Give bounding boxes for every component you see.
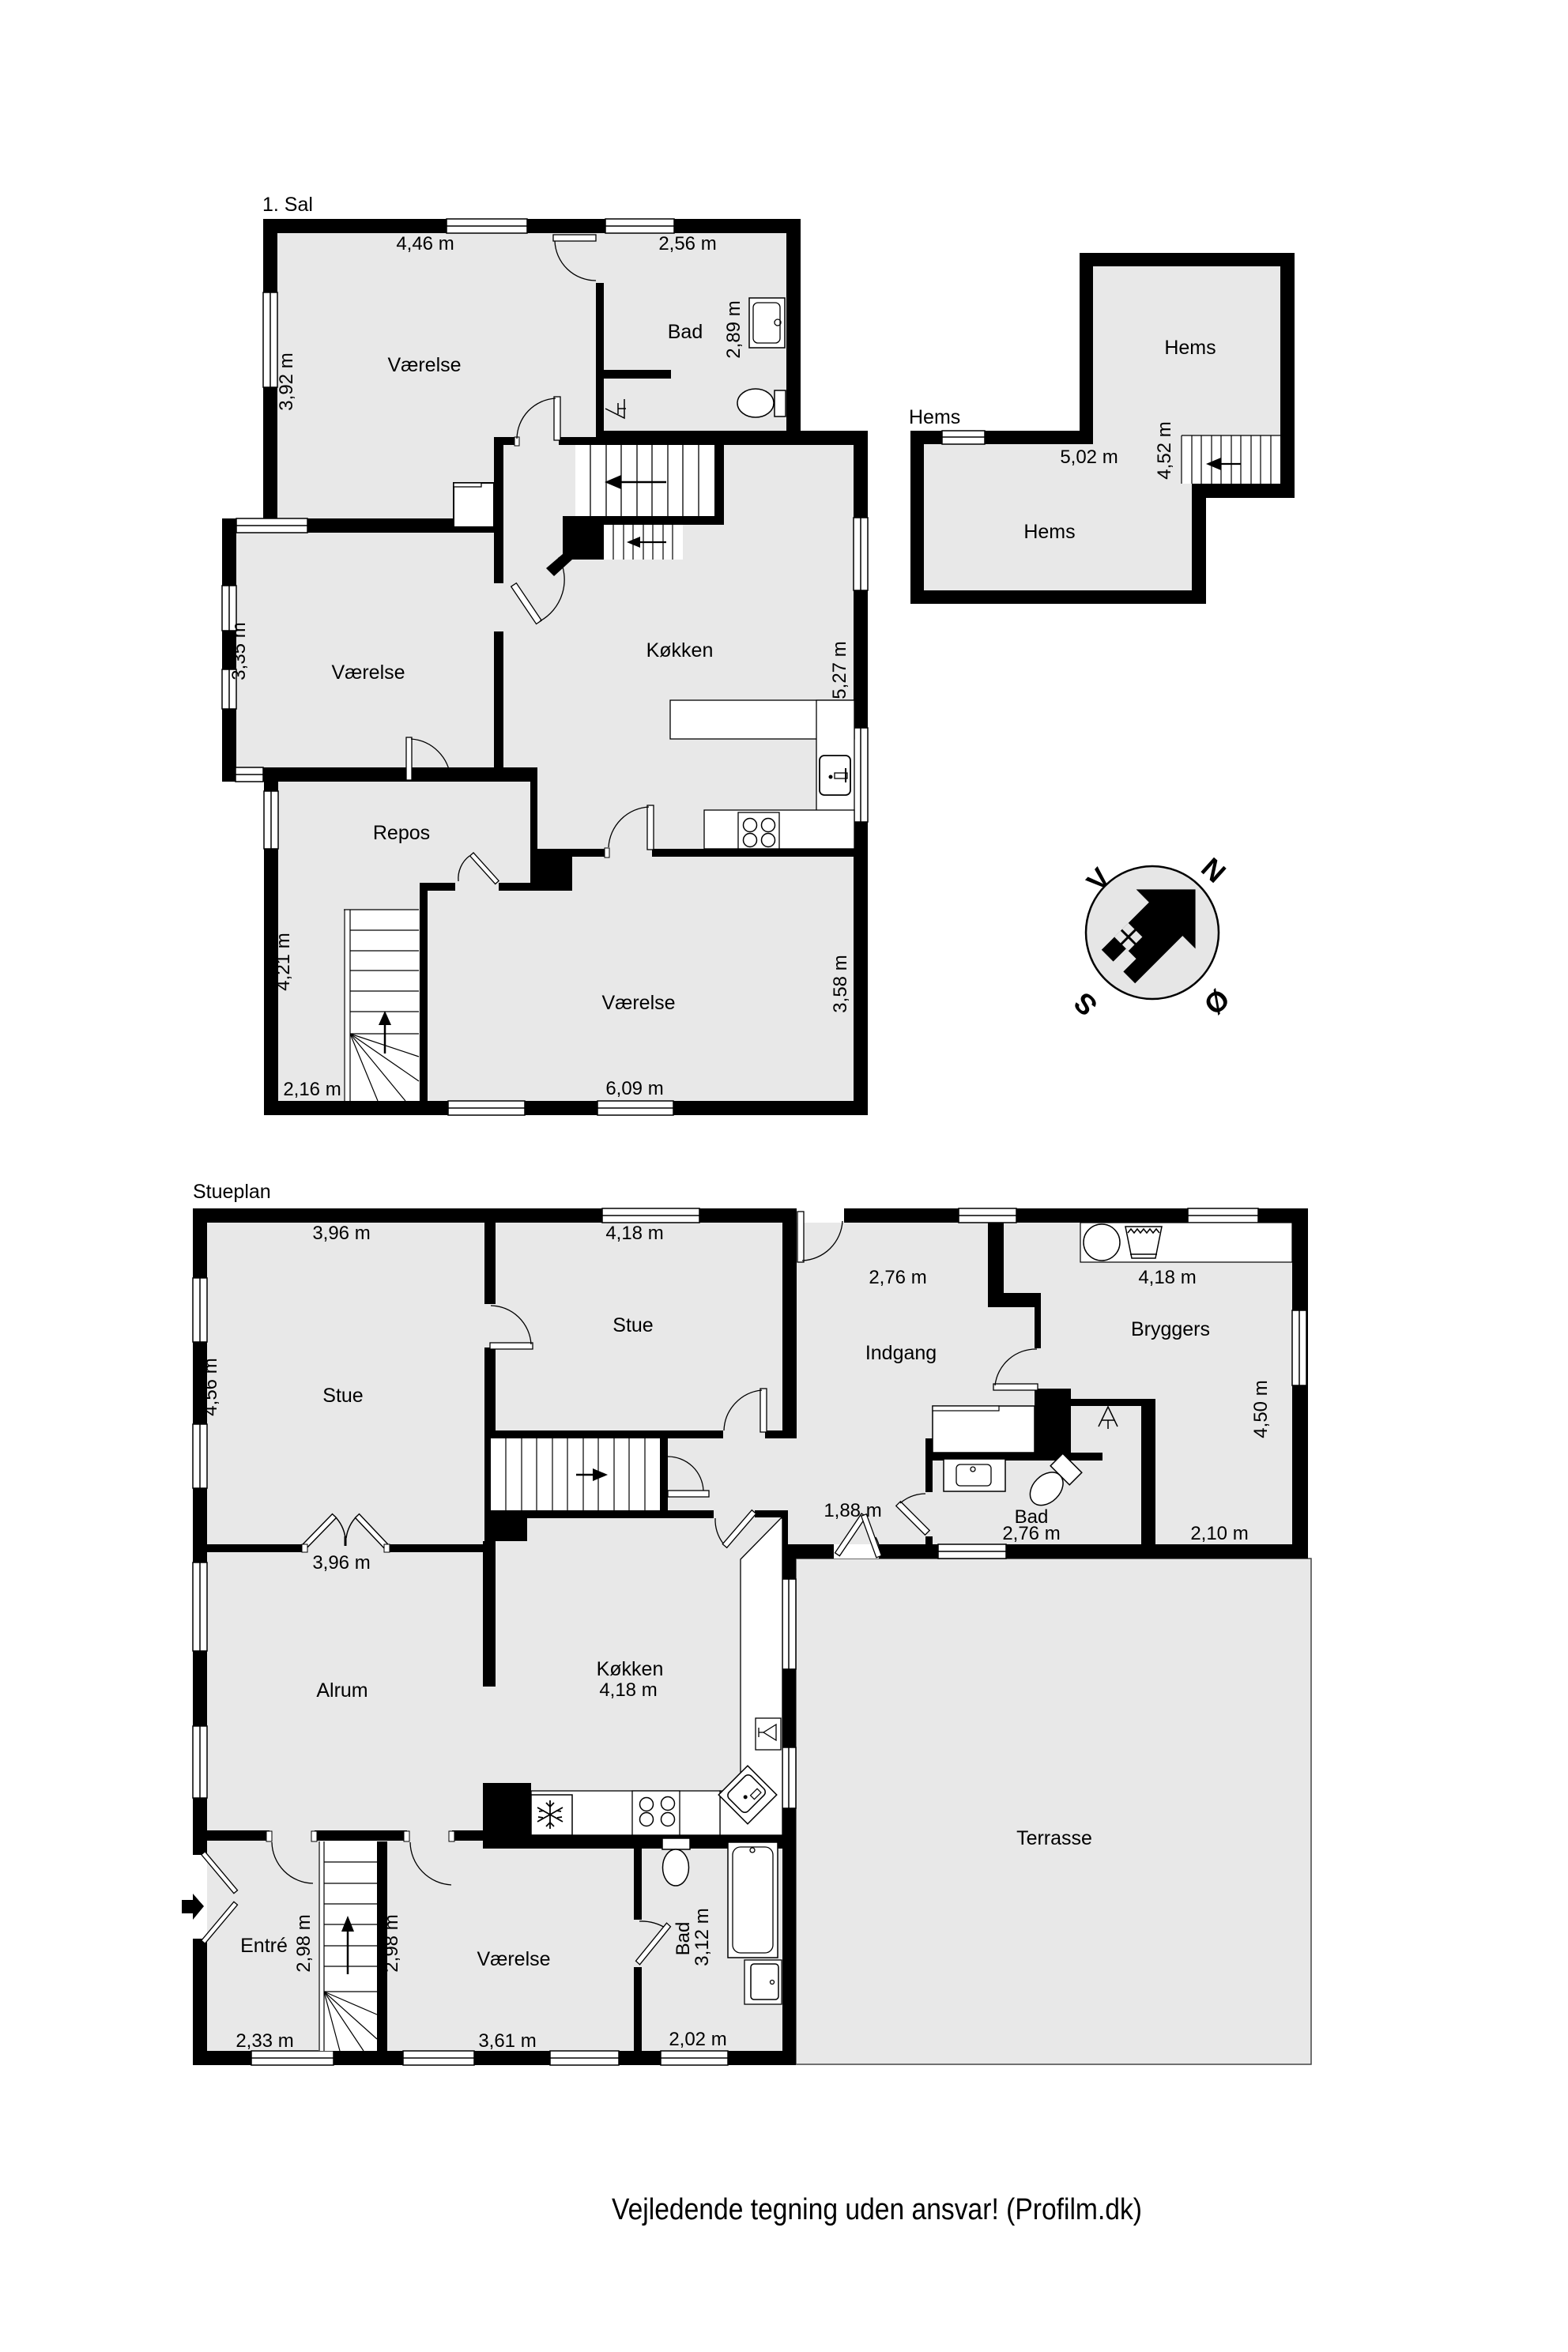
- svg-text:Bryggers: Bryggers: [1131, 1318, 1210, 1340]
- svg-text:2,89 m: 2,89 m: [723, 300, 744, 358]
- svg-text:Værelse: Værelse: [477, 1948, 550, 1970]
- svg-text:5,27 m: 5,27 m: [829, 641, 850, 699]
- svg-text:2,16 m: 2,16 m: [283, 1079, 341, 1100]
- svg-text:Indgang: Indgang: [865, 1342, 937, 1364]
- svg-text:2,56 m: 2,56 m: [658, 233, 716, 254]
- svg-text:2,98 m: 2,98 m: [293, 1914, 315, 1972]
- svg-text:1,88 m: 1,88 m: [824, 1500, 881, 1521]
- svg-text:3,96 m: 3,96 m: [312, 1223, 370, 1244]
- svg-text:Repos: Repos: [373, 822, 430, 844]
- svg-text:Alrum: Alrum: [316, 1679, 367, 1702]
- svg-text:Stueplan: Stueplan: [193, 1181, 271, 1203]
- svg-text:4,46 m: 4,46 m: [396, 233, 454, 254]
- svg-text:3,61 m: 3,61 m: [478, 2030, 536, 2052]
- svg-text:4,21 m: 4,21 m: [273, 933, 294, 990]
- svg-text:4,50 m: 4,50 m: [1250, 1380, 1272, 1438]
- svg-text:Hems: Hems: [909, 406, 960, 428]
- svg-text:Værelse: Værelse: [601, 992, 675, 1014]
- svg-text:2,76 m: 2,76 m: [1002, 1523, 1060, 1544]
- svg-text:4,52 m: 4,52 m: [1154, 421, 1175, 479]
- svg-text:4,18 m: 4,18 m: [1138, 1267, 1196, 1288]
- svg-text:3,35 m: 3,35 m: [228, 622, 250, 680]
- svg-text:2,10 m: 2,10 m: [1190, 1523, 1248, 1544]
- svg-text:Terrasse: Terrasse: [1016, 1827, 1092, 1849]
- svg-text:4,18 m: 4,18 m: [605, 1223, 663, 1244]
- svg-text:3,96 m: 3,96 m: [312, 1552, 370, 1574]
- svg-text:4,56 m: 4,56 m: [200, 1358, 221, 1415]
- svg-text:2,98 m: 2,98 m: [381, 1914, 402, 1972]
- svg-text:Hems: Hems: [1164, 337, 1216, 359]
- svg-text:Køkken: Køkken: [646, 639, 714, 661]
- svg-text:Bad: Bad: [673, 1922, 694, 1956]
- svg-text:Stue: Stue: [612, 1314, 653, 1336]
- svg-text:5,02 m: 5,02 m: [1060, 447, 1118, 468]
- svg-text:1. Sal: 1. Sal: [262, 194, 313, 216]
- svg-text:3,58 m: 3,58 m: [830, 955, 851, 1012]
- svg-text:6,09 m: 6,09 m: [605, 1078, 663, 1099]
- svg-text:4,18 m: 4,18 m: [599, 1679, 657, 1701]
- svg-text:Køkken: Køkken: [597, 1658, 664, 1680]
- svg-text:2,33 m: 2,33 m: [236, 2030, 293, 2052]
- svg-text:Værelse: Værelse: [387, 354, 461, 376]
- svg-text:3,12 m: 3,12 m: [692, 1908, 713, 1966]
- svg-text:Hems: Hems: [1023, 521, 1075, 543]
- svg-text:Vejledende tegning uden ansvar: Vejledende tegning uden ansvar! (Profilm…: [612, 2193, 1142, 2226]
- svg-text:2,02 m: 2,02 m: [669, 2029, 726, 2050]
- svg-text:3,92 m: 3,92 m: [276, 352, 297, 410]
- svg-text:Stue: Stue: [322, 1385, 363, 1407]
- svg-text:Værelse: Værelse: [331, 661, 405, 684]
- svg-text:2,76 m: 2,76 m: [869, 1267, 926, 1288]
- svg-text:Bad: Bad: [668, 321, 703, 343]
- svg-text:Entré: Entré: [240, 1935, 288, 1957]
